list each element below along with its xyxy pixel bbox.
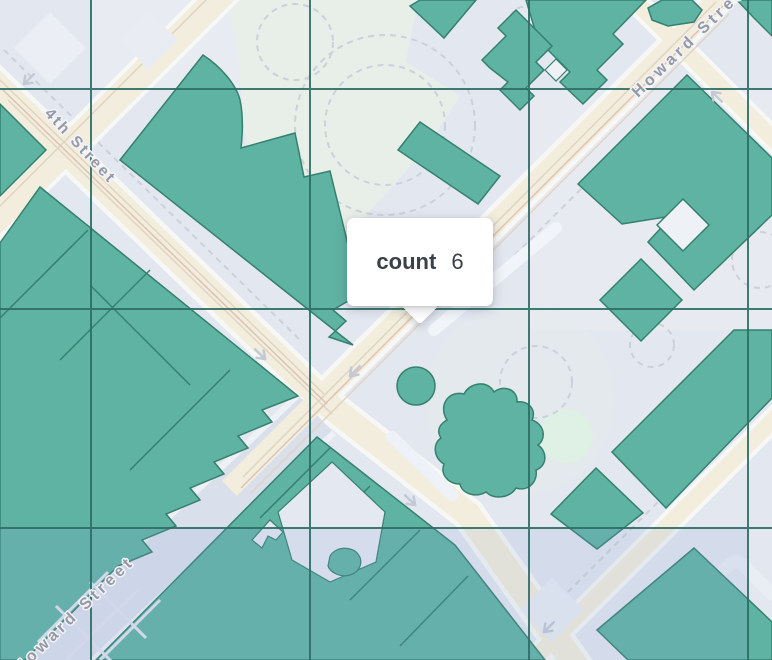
grid-row-tint xyxy=(0,528,748,660)
map-canvas[interactable]: 4th Street Howard Street Howard Street xyxy=(0,0,772,660)
map-viewport[interactable]: 4th Street Howard Street Howard Street c… xyxy=(0,0,772,660)
